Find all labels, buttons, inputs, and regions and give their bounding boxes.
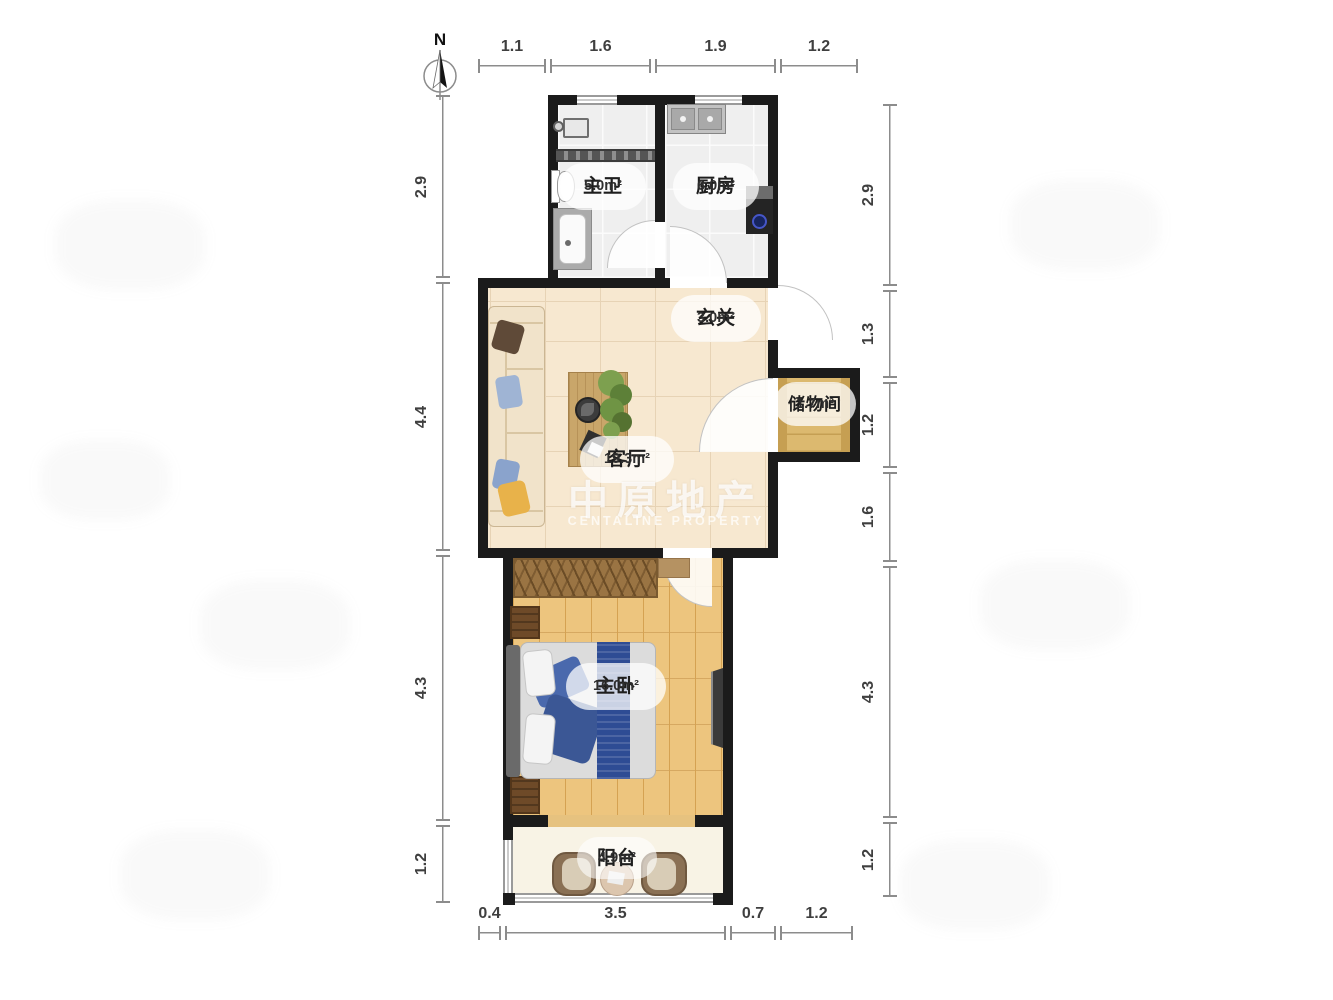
faint-watermark [200,580,350,670]
room-label-bathroom: 主卫 5.0m² [560,163,646,210]
dim-value: 1.9 [704,38,726,56]
dim-right-4: 4.3 [883,566,897,818]
bed-headboard [506,645,520,777]
sofa-seam [505,368,543,370]
wall [768,368,860,378]
dim-right-0: 2.9 [883,104,897,286]
room-area: 5.0m² [584,178,622,195]
wall [655,268,665,288]
faint-watermark [980,560,1130,650]
balcony-side-window [503,840,513,893]
room-label-kitchen: 厨房 6.0m² [673,163,759,210]
dim-value: 1.2 [805,905,827,923]
dim-top-2: 1.9 [655,59,776,73]
dim-value: 1.6 [860,506,878,528]
room-area: 3.0m² [697,310,735,327]
dim-top-1: 1.6 [550,59,651,73]
room-label-balcony: 阳台 4.9m² [577,837,657,879]
sink-drain-dot [707,116,713,122]
dim-value: 1.2 [413,853,431,875]
sofa-seam [505,432,543,434]
wall [768,340,778,378]
wall [478,278,488,558]
dim-bottom-3: 1.2 [780,926,853,940]
tv [711,668,723,748]
wall [503,893,515,905]
dim-value: 0.4 [478,905,500,923]
dim-value: 1.6 [589,38,611,56]
room-area: 6.0m² [697,178,735,195]
dim-value: 4.3 [860,681,878,703]
stove-burner [752,214,767,229]
faint-watermark [120,830,270,920]
wall [768,452,860,462]
dim-value: 1.3 [860,323,878,345]
dim-left-1: 4.4 [436,282,450,551]
dim-value: 3.5 [604,905,626,923]
dim-value: 2.9 [860,184,878,206]
faint-watermark [40,440,170,520]
room-area: 4.9m² [598,850,636,867]
faint-watermark [55,200,205,290]
dim-value: 2.9 [413,175,431,197]
washbasin-faucet [553,121,564,132]
nightstand [510,606,540,639]
room-area: 19.3m² [604,451,650,468]
dim-value: 4.4 [413,405,431,427]
washbasin [563,118,589,138]
table-tray-detail [581,403,594,416]
floor-plan: 主卫 5.0m² 厨房 6.0m² 玄关 3.0m² 储物间 1.7m² 客厅 … [0,0,1333,1000]
faint-watermark [1010,180,1160,270]
wardrobe [513,558,658,598]
wall [723,827,733,905]
faint-watermark [900,840,1050,930]
bed-pillow [522,649,557,698]
nightstand [510,776,540,814]
room-area: 16.0m² [593,678,639,695]
dim-value: 0.7 [742,905,764,923]
dim-bottom-2: 0.7 [730,926,776,940]
dim-right-2: 1.2 [883,382,897,468]
dim-value: 1.2 [860,848,878,870]
dim-right-1: 1.3 [883,290,897,378]
room-label-bedroom: 主卧 16.0m² [566,663,666,710]
balcony-door-threshold [548,815,695,827]
wall [478,278,670,288]
wardrobe-shelf [658,558,690,578]
bathroom-window [577,95,617,105]
bathtub-drain [565,240,571,246]
dim-left-0: 2.9 [436,95,450,278]
dim-left-2: 4.3 [436,555,450,821]
dim-top-0: 1.1 [478,59,546,73]
dim-right-5: 1.2 [883,822,897,897]
bathtub-basin [559,214,586,264]
dim-value: 1.1 [501,38,523,56]
shower-partition [556,149,655,162]
dim-top-3: 1.2 [780,59,858,73]
entry-door-arc [778,285,833,340]
dim-value: 1.2 [860,414,878,436]
sofa-pillow-blue [495,374,524,409]
room-label-hallway: 玄关 3.0m² [671,295,761,342]
wall [655,105,665,222]
bed-pillow [522,713,556,765]
wall [723,548,733,832]
room-label-storage: 储物间 1.7m² [774,382,856,426]
room-area: 1.7m² [796,396,834,413]
dim-right-3: 1.6 [883,472,897,562]
dim-bottom-1: 3.5 [505,926,726,940]
dim-left-3: 1.2 [436,825,450,903]
watermark-subtitle: CENTALINE PROPERTY [556,514,776,528]
dim-value: 4.3 [413,677,431,699]
sink-drain-dot [680,116,686,122]
dim-bottom-0: 0.4 [478,926,501,940]
dim-value: 1.2 [808,38,830,56]
